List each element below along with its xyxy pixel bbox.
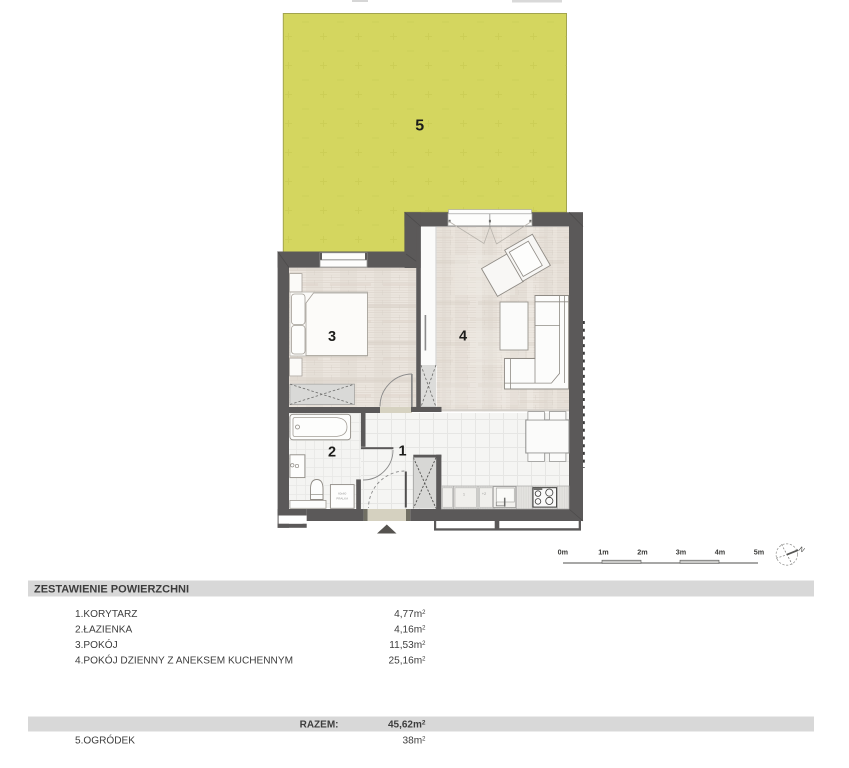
svg-text:2m: 2m: [637, 548, 647, 557]
svg-text:RAZEM:: RAZEM:: [300, 720, 339, 731]
svg-text:5: 5: [415, 118, 424, 135]
svg-text:3: 3: [328, 329, 336, 345]
svg-text:1.KORYTARZ: 1.KORYTARZ: [75, 609, 137, 620]
svg-text:0m: 0m: [558, 548, 568, 557]
svg-text:4: 4: [459, 329, 467, 345]
svg-text:+2: +2: [482, 491, 487, 496]
svg-text:3.POKÓJ: 3.POKÓJ: [75, 638, 118, 651]
svg-text:5m: 5m: [754, 548, 764, 557]
svg-text:4m: 4m: [715, 548, 725, 557]
svg-text:45,62m2: 45,62m2: [388, 720, 426, 731]
svg-text:1m: 1m: [598, 548, 608, 557]
svg-text:1: 1: [399, 444, 407, 460]
svg-text:4.POKÓJ DZIENNY Z ANEKSEM KUCH: 4.POKÓJ DZIENNY Z ANEKSEM KUCHENNYM: [75, 653, 293, 666]
svg-text:4,77m2: 4,77m2: [394, 609, 426, 620]
svg-text:PRALKA: PRALKA: [336, 497, 348, 501]
svg-text:5.OGRÓDEK: 5.OGRÓDEK: [75, 734, 135, 747]
svg-text:3m: 3m: [676, 548, 686, 557]
svg-text:11,53m2: 11,53m2: [389, 640, 426, 651]
svg-text:ZESTAWIENIE POWIERZCHNI: ZESTAWIENIE POWIERZCHNI: [34, 584, 189, 596]
svg-text:2: 2: [328, 445, 336, 461]
svg-text:60x60: 60x60: [338, 492, 347, 496]
svg-text:2.ŁAZIENKA: 2.ŁAZIENKA: [75, 625, 132, 636]
svg-text:4,16m2: 4,16m2: [394, 625, 426, 636]
svg-text:25,16m2: 25,16m2: [388, 655, 426, 666]
